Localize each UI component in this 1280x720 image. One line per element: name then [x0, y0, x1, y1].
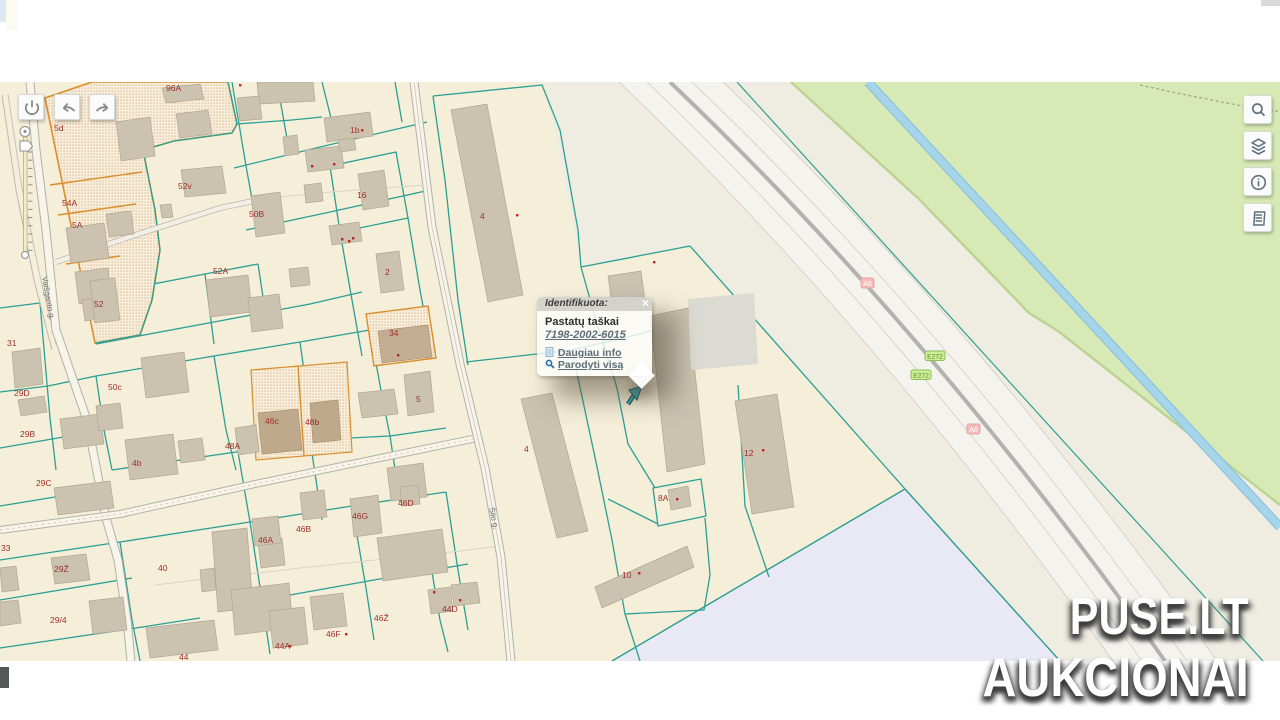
- svg-text:A6: A6: [969, 427, 978, 434]
- svg-text:46A: 46A: [258, 535, 273, 545]
- svg-text:4: 4: [524, 444, 529, 454]
- svg-text:46D: 46D: [398, 498, 414, 508]
- svg-text:33: 33: [1, 543, 11, 553]
- svg-text:46F: 46F: [326, 629, 341, 639]
- svg-text:44D: 44D: [442, 604, 458, 614]
- svg-text:52A: 52A: [213, 266, 228, 276]
- svg-text:52: 52: [94, 299, 104, 309]
- svg-text:5A: 5A: [72, 220, 83, 230]
- svg-text:16: 16: [357, 190, 367, 200]
- svg-text:29C: 29C: [36, 478, 52, 488]
- svg-text:50c: 50c: [108, 382, 122, 392]
- svg-text:96A: 96A: [166, 83, 181, 93]
- svg-text:34: 34: [389, 328, 399, 338]
- svg-text:46Ž: 46Ž: [374, 613, 389, 623]
- svg-text:8A: 8A: [658, 493, 669, 503]
- svg-text:A6: A6: [863, 281, 872, 288]
- svg-text:4b: 4b: [132, 458, 142, 468]
- svg-text:5d: 5d: [54, 123, 64, 133]
- svg-text:29B: 29B: [20, 429, 35, 439]
- svg-text:5: 5: [416, 394, 421, 404]
- svg-text:46G: 46G: [352, 511, 368, 521]
- svg-text:48b: 48b: [305, 417, 319, 427]
- svg-text:2: 2: [385, 267, 390, 277]
- svg-text:46B: 46B: [296, 524, 311, 534]
- svg-text:44: 44: [179, 652, 189, 661]
- svg-text:12: 12: [744, 448, 754, 458]
- svg-text:52v: 52v: [178, 181, 192, 191]
- svg-text:40: 40: [158, 563, 168, 573]
- svg-text:4: 4: [480, 211, 485, 221]
- svg-text:48A: 48A: [225, 441, 240, 451]
- svg-text:31: 31: [7, 338, 17, 348]
- svg-text:1b: 1b: [350, 125, 360, 135]
- svg-text:29D: 29D: [14, 388, 30, 398]
- svg-text:50B: 50B: [249, 209, 264, 219]
- svg-text:54A: 54A: [62, 198, 77, 208]
- svg-text:E272: E272: [927, 354, 943, 361]
- svg-text:46c: 46c: [265, 416, 279, 426]
- svg-text:44A: 44A: [275, 641, 290, 651]
- svg-text:29/4: 29/4: [50, 615, 67, 625]
- svg-text:10: 10: [622, 570, 632, 580]
- svg-text:E272: E272: [913, 373, 929, 380]
- svg-text:29Ž: 29Ž: [54, 564, 69, 574]
